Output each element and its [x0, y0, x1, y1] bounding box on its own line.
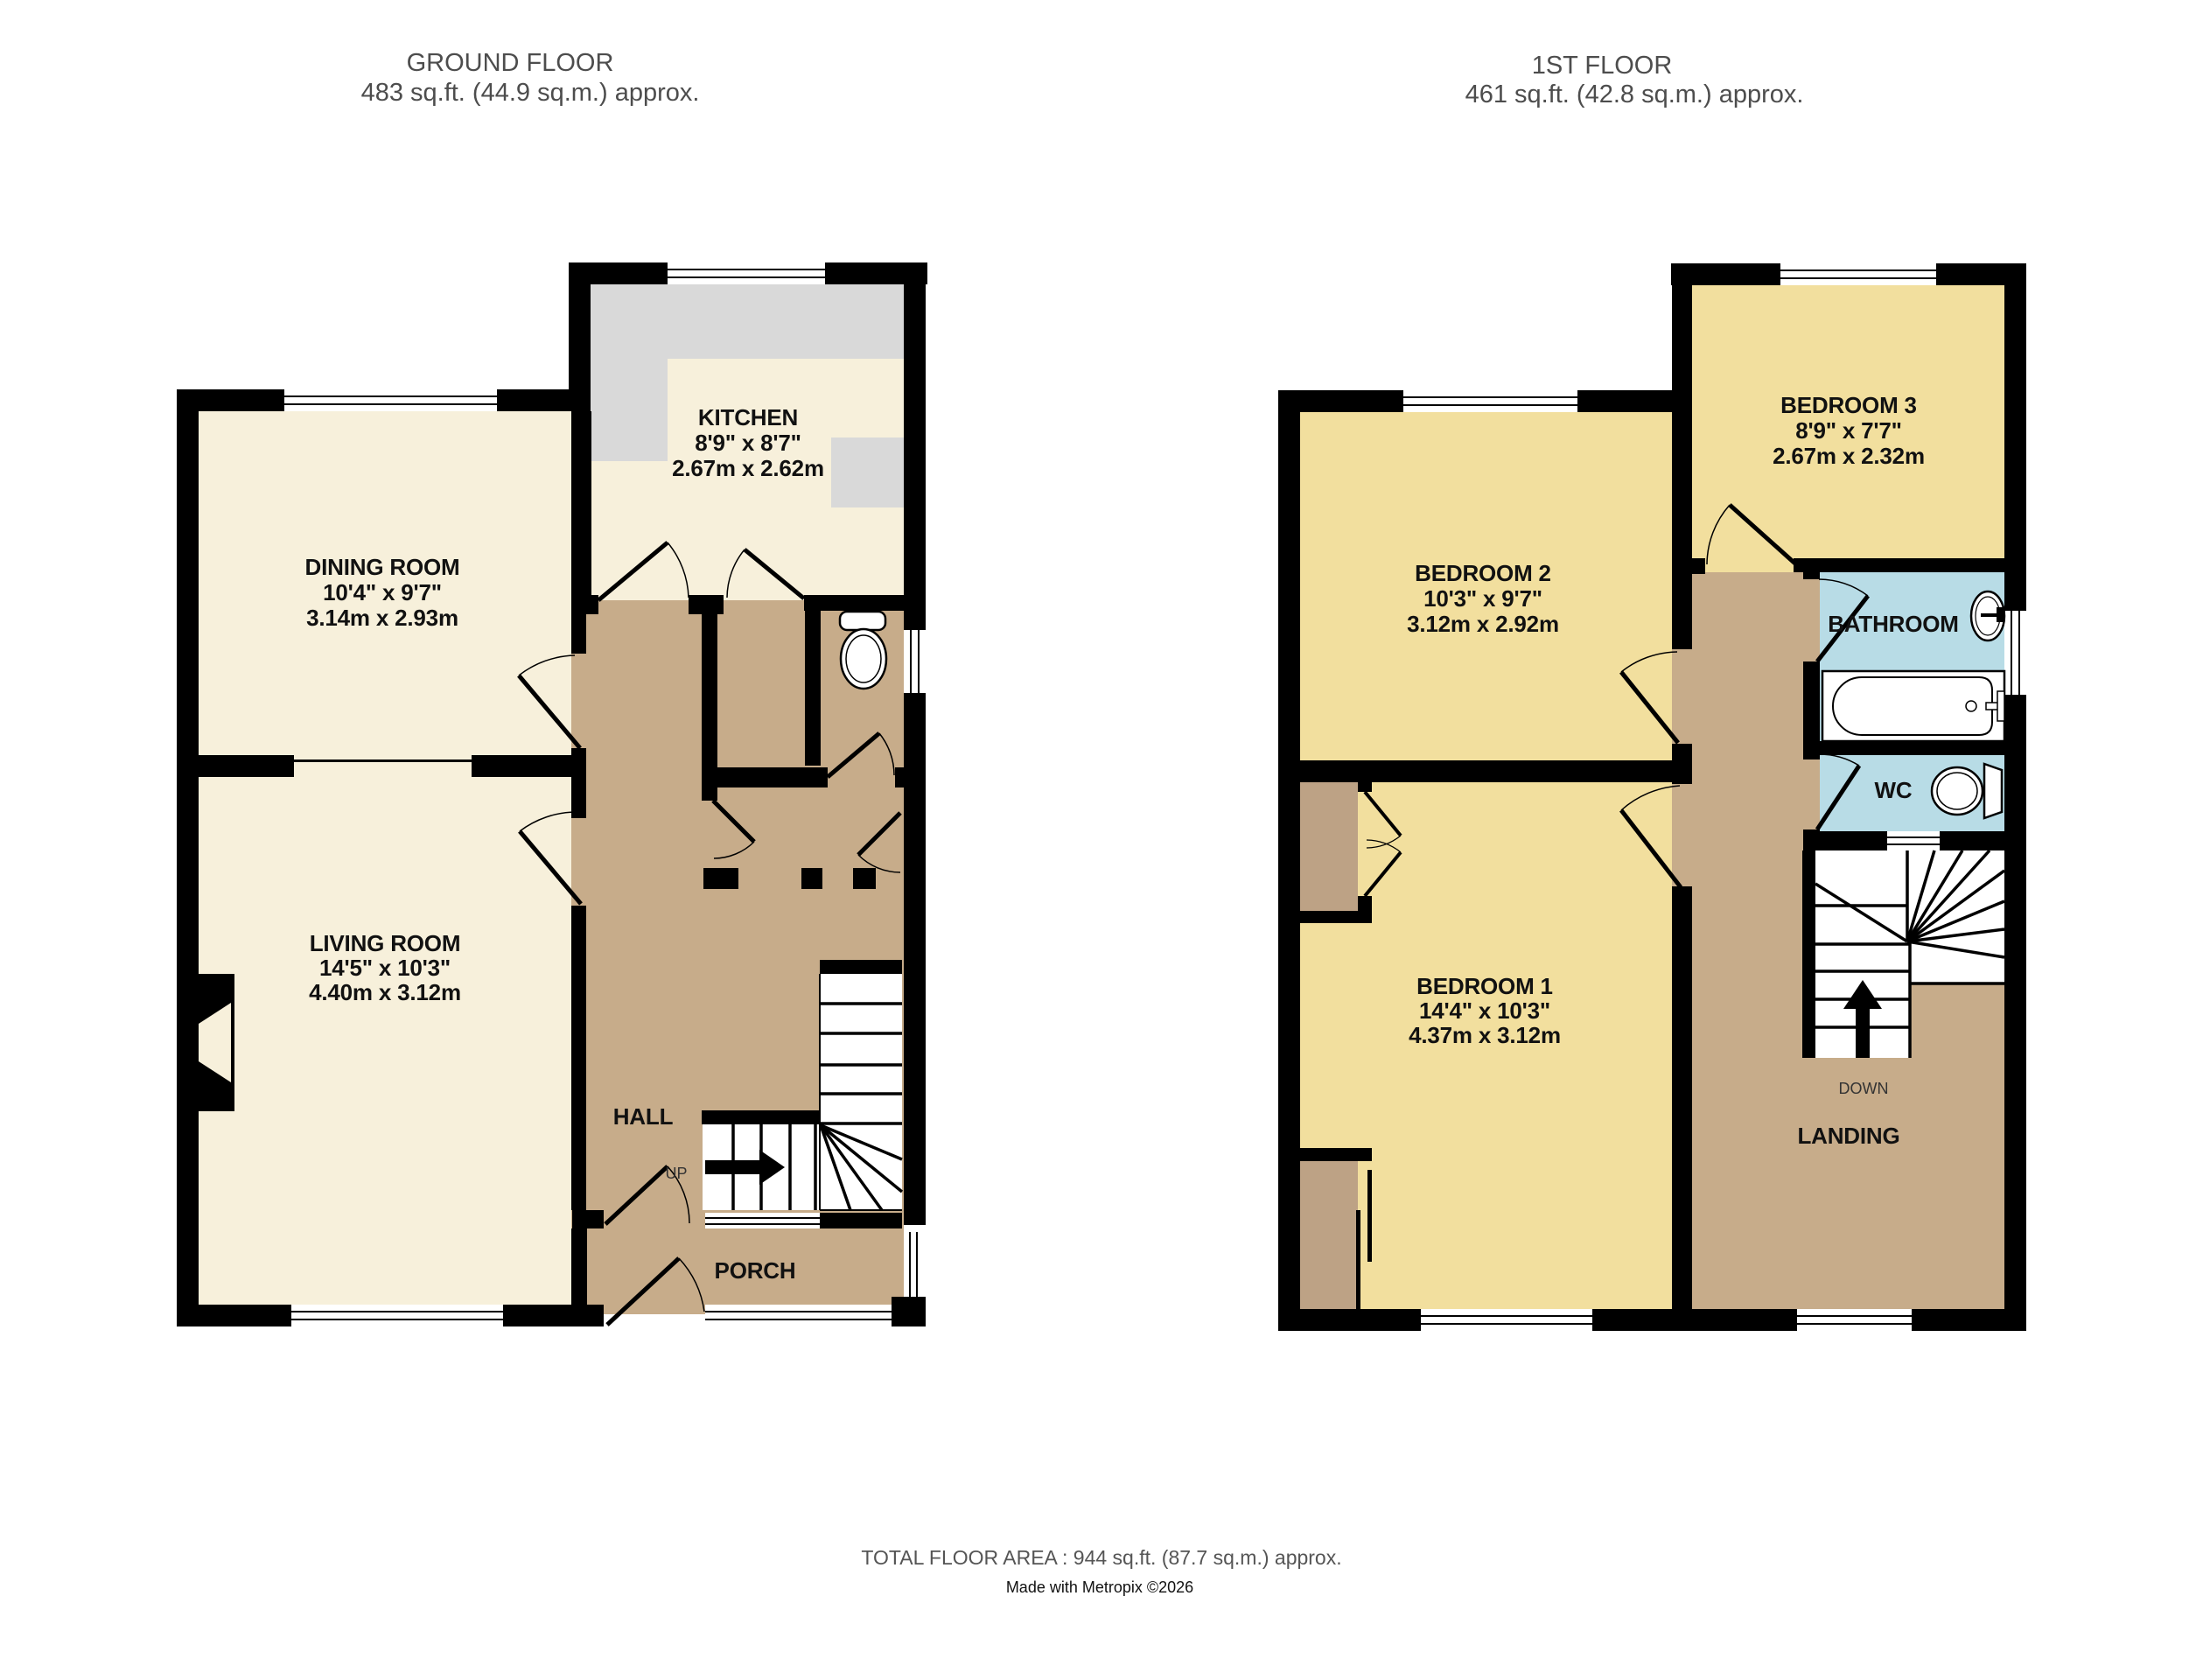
- svg-text:14'4" x 10'3": 14'4" x 10'3": [1419, 997, 1550, 1024]
- svg-text:3.14m x 2.93m: 3.14m x 2.93m: [306, 605, 458, 631]
- svg-text:1ST FLOOR: 1ST FLOOR: [1532, 52, 1673, 80]
- svg-text:BEDROOM 2: BEDROOM 2: [1415, 560, 1551, 586]
- svg-text:LANDING: LANDING: [1797, 1123, 1899, 1149]
- svg-text:BEDROOM 1: BEDROOM 1: [1416, 973, 1553, 999]
- svg-text:8'9" x 8'7": 8'9" x 8'7": [695, 430, 801, 456]
- svg-text:GROUND FLOOR: GROUND FLOOR: [407, 49, 614, 77]
- svg-text:KITCHEN: KITCHEN: [698, 404, 798, 430]
- svg-text:10'3" x 9'7": 10'3" x 9'7": [1423, 585, 1542, 612]
- svg-text:461 sq.ft. (42.8 sq.m.) approx: 461 sq.ft. (42.8 sq.m.) approx.: [1465, 80, 1804, 108]
- svg-text:483 sq.ft. (44.9 sq.m.) approx: 483 sq.ft. (44.9 sq.m.) approx.: [361, 79, 700, 107]
- svg-text:BATHROOM: BATHROOM: [1828, 611, 1959, 637]
- svg-text:3.12m x 2.92m: 3.12m x 2.92m: [1407, 611, 1559, 637]
- svg-text:2.67m x 2.32m: 2.67m x 2.32m: [1773, 443, 1925, 469]
- svg-text:BEDROOM 3: BEDROOM 3: [1780, 392, 1917, 418]
- svg-text:14'5" x 10'3": 14'5" x 10'3": [319, 955, 451, 981]
- svg-text:4.37m x 3.12m: 4.37m x 3.12m: [1409, 1022, 1561, 1048]
- svg-text:UP: UP: [665, 1165, 687, 1182]
- svg-text:10'4" x 9'7": 10'4" x 9'7": [323, 579, 442, 605]
- svg-text:DOWN: DOWN: [1839, 1080, 1889, 1097]
- svg-text:PORCH: PORCH: [715, 1257, 796, 1284]
- svg-text:Made with Metropix ©2026: Made with Metropix ©2026: [1006, 1578, 1193, 1596]
- svg-text:2.67m x 2.62m: 2.67m x 2.62m: [672, 455, 824, 481]
- svg-text:LIVING ROOM: LIVING ROOM: [310, 930, 461, 956]
- svg-text:8'9" x 7'7": 8'9" x 7'7": [1795, 417, 1902, 444]
- svg-text:4.40m x 3.12m: 4.40m x 3.12m: [309, 979, 461, 1005]
- svg-text:TOTAL FLOOR AREA : 944 sq.ft.: TOTAL FLOOR AREA : 944 sq.ft. (87.7 sq.m…: [861, 1546, 1341, 1569]
- svg-text:HALL: HALL: [613, 1103, 674, 1130]
- svg-text:DINING ROOM: DINING ROOM: [305, 554, 460, 580]
- svg-text:WC: WC: [1875, 777, 1913, 803]
